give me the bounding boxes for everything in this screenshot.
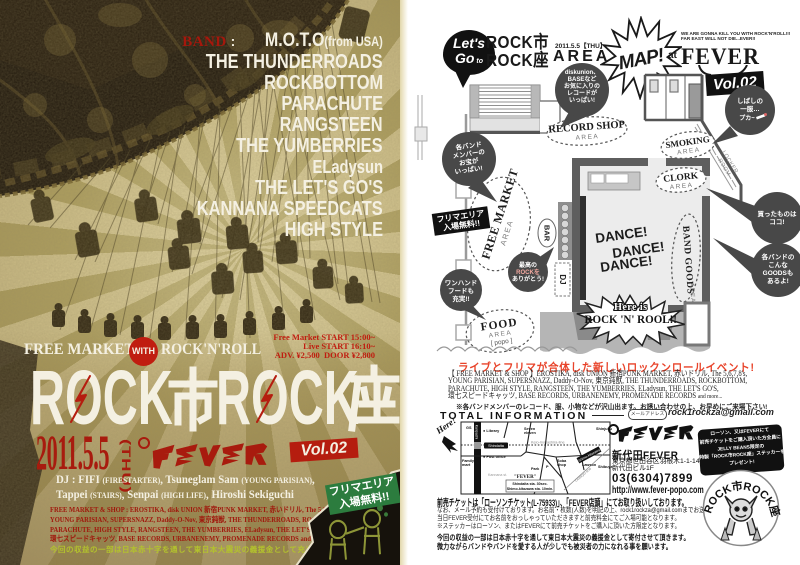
svg-text:shop: shop — [557, 463, 567, 467]
svg-text:各バンドの: 各バンドの — [761, 252, 795, 261]
svg-text:ありがとう!: ありがとう! — [512, 275, 544, 283]
svg-text:Shindaita: Shindaita — [488, 444, 505, 448]
svg-text:GS: GS — [466, 426, 472, 430]
svg-text:Lawson: Lawson — [582, 463, 597, 467]
svg-text:買ったものは: 買ったものは — [758, 209, 798, 218]
svg-text:いっぱい!: いっぱい! — [569, 96, 595, 104]
svg-text:Shindaita sta. 30sec.: Shindaita sta. 30sec. — [512, 482, 547, 486]
svg-text:プカ~: プカ~ — [739, 114, 755, 122]
svg-text:一服…: 一服… — [740, 104, 760, 113]
svg-text:こんな: こんな — [768, 260, 788, 269]
svg-text:BAR: BAR — [543, 225, 552, 242]
svg-text:Here!: Here! — [436, 418, 458, 437]
svg-text:Park: Park — [531, 467, 540, 471]
svg-text:GOODSも: GOODSも — [763, 269, 794, 277]
svg-text:eleven: eleven — [524, 431, 537, 435]
svg-text:Keio-Inokashira-line: Keio-Inokashira-line — [531, 441, 565, 445]
svg-text:ココ!: ココ! — [769, 218, 784, 226]
svg-text:Kannana st.: Kannana st. — [488, 473, 507, 477]
svg-text:あるよ!: あるよ! — [767, 276, 789, 285]
svg-text:しばしの: しばしの — [737, 96, 764, 105]
svg-text:Kanpachi: Kanpachi — [475, 425, 479, 440]
svg-text:● Library: ● Library — [483, 429, 500, 433]
svg-text:お気に入りの: お気に入りの — [564, 82, 600, 90]
svg-text:DJ: DJ — [558, 274, 567, 284]
svg-text:mart: mart — [462, 463, 471, 467]
svg-text:ROCK: ROCK — [216, 360, 359, 440]
svg-text:Shimo-kitazawa sta. 10min.: Shimo-kitazawa sta. 10min. — [507, 487, 554, 491]
svg-text:BASEなど: BASEなど — [568, 75, 597, 83]
svg-text:ROCKを: ROCKを — [516, 268, 540, 276]
svg-text:diskunion、: diskunion、 — [565, 70, 599, 76]
svg-text:ROCK 'N' ROOL!!: ROCK 'N' ROOL!! — [585, 314, 677, 326]
svg-text:フードも: フードも — [448, 287, 474, 295]
svg-text:充実!!: 充実!! — [452, 294, 469, 303]
svg-text:Here is: Here is — [614, 302, 648, 313]
svg-text:ワンハンド: ワンハンド — [445, 279, 478, 287]
svg-text:レコードが: レコードが — [567, 89, 597, 97]
svg-text:"FEVER": "FEVER" — [514, 475, 537, 480]
svg-text:最高の: 最高の — [519, 261, 537, 269]
svg-text:● Post office: ● Post office — [483, 455, 506, 459]
